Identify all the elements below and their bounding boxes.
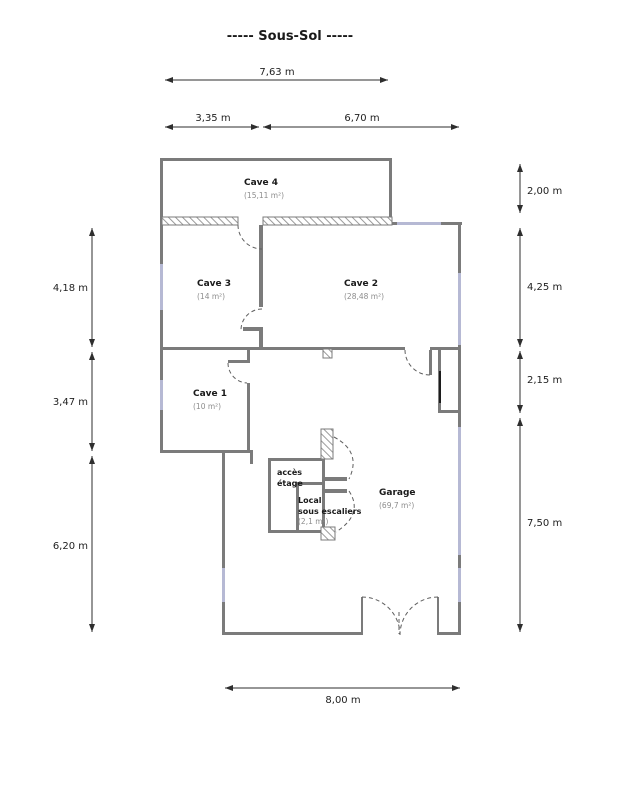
garage-door-arc-right	[400, 597, 438, 635]
dimension-lines	[92, 80, 520, 688]
window-garage-left	[222, 568, 225, 602]
wall-cave4-top	[160, 158, 392, 161]
room-name-cave2: Cave 2	[344, 279, 378, 289]
room-name-cave1: Cave 1	[193, 389, 227, 399]
dim-label-right-3: 2,15 m	[527, 375, 562, 386]
room-area-cave1: (10 m²)	[193, 402, 221, 411]
wall-stair-stub-lower	[325, 489, 347, 493]
alcove-door-leaf	[439, 371, 441, 403]
dim-label-left-3: 6,20 m	[53, 541, 88, 552]
wall-cave3-cave2-divider-lower	[259, 331, 263, 350]
floor-plan-page: ----- Sous-Sol ----- 7,63 m 3,35 m 6,70 …	[0, 0, 640, 792]
room-name-garage: Garage	[379, 488, 416, 498]
dim-label-left-2: 3,47 m	[53, 397, 88, 408]
wall-bottom-right	[438, 632, 461, 635]
wall-stair-room-left	[268, 458, 271, 533]
window-left-cave1	[160, 380, 163, 410]
hatched-post-mid-wall	[323, 349, 332, 358]
dim-label-top-total: 7,63 m	[259, 67, 294, 78]
room-area-cave3: (14 m²)	[197, 292, 225, 301]
hatched-wall-cave4-right	[263, 217, 392, 225]
door-arc-stair-top	[334, 437, 353, 479]
hatched-pillar-stair-top	[321, 429, 333, 459]
room-area-garage: (69,7 m²)	[379, 501, 414, 510]
wall-stair-room-top	[268, 458, 322, 461]
garage-door-arc-left	[362, 597, 400, 635]
garage-door-leaf-right	[437, 597, 439, 635]
room-area-cave4: (15,11 m²)	[244, 191, 284, 200]
dim-label-bottom: 8,00 m	[325, 695, 360, 706]
plan-title: ----- Sous-Sol -----	[227, 29, 353, 44]
window-top-extension	[397, 222, 441, 225]
garage-door-leaf-left	[361, 597, 363, 635]
door-arc-cave3-cave2	[241, 309, 262, 330]
wall-mid-horizontal-right	[430, 347, 458, 350]
wall-garage-left	[222, 453, 225, 635]
hatched-walls	[162, 217, 392, 540]
dimension-labels: 7,63 m 3,35 m 6,70 m 4,18 m 3,47 m 6,20 …	[53, 67, 562, 706]
dim-label-right-4: 7,50 m	[527, 518, 562, 529]
wall-cave1-door-stub	[228, 360, 250, 363]
window-left-cave3	[160, 264, 163, 310]
hatched-pillar-stair-bottom	[321, 527, 335, 540]
wall-cave3-cave2-divider-upper	[259, 225, 263, 307]
room-name-local-line1: Local	[298, 496, 322, 505]
window-right-cave2	[458, 273, 461, 345]
wall-right-door-leaf	[429, 350, 432, 375]
door-arc-cave1	[228, 363, 247, 383]
wall-bottom-left	[222, 632, 362, 635]
wall-cave1-bottom-stub	[250, 453, 253, 464]
room-labels: Cave 4 (15,11 m²) Cave 3 (14 m²) Cave 2 …	[193, 178, 416, 526]
wall-alcove-horizontal	[438, 410, 461, 413]
dim-label-top-left: 3,35 m	[195, 113, 230, 124]
floor-plan-svg: ----- Sous-Sol ----- 7,63 m 3,35 m 6,70 …	[0, 0, 640, 792]
door-arc-garage-right	[405, 350, 430, 375]
room-area-local: (2,1 m²)	[298, 517, 329, 526]
hatched-wall-cave4-left	[162, 217, 238, 225]
wall-mid-horizontal-left	[160, 347, 405, 350]
window-right-garage-lower	[458, 568, 461, 602]
room-name-acces-line1: accès	[277, 467, 302, 477]
dim-label-left-1: 4,18 m	[53, 283, 88, 294]
room-name-cave4: Cave 4	[244, 178, 278, 188]
door-arc-cave4	[238, 225, 262, 249]
wall-stair-stub-upper	[325, 477, 347, 481]
room-name-local-line2: sous escaliers	[298, 507, 362, 516]
room-area-cave2: (28,48 m²)	[344, 292, 384, 301]
wall-cave1-right-lower	[247, 383, 250, 453]
room-name-cave3: Cave 3	[197, 279, 231, 289]
dim-label-top-right: 6,70 m	[344, 113, 379, 124]
wall-cave4-right	[389, 158, 392, 224]
wall-cave3-door-stub	[243, 327, 263, 331]
window-right-garage-upper	[458, 427, 461, 555]
dim-label-right-2: 4,25 m	[527, 282, 562, 293]
dim-label-right-1: 2,00 m	[527, 186, 562, 197]
room-name-acces-line2: étage	[277, 478, 303, 488]
wall-cave1-bottom	[160, 450, 253, 453]
